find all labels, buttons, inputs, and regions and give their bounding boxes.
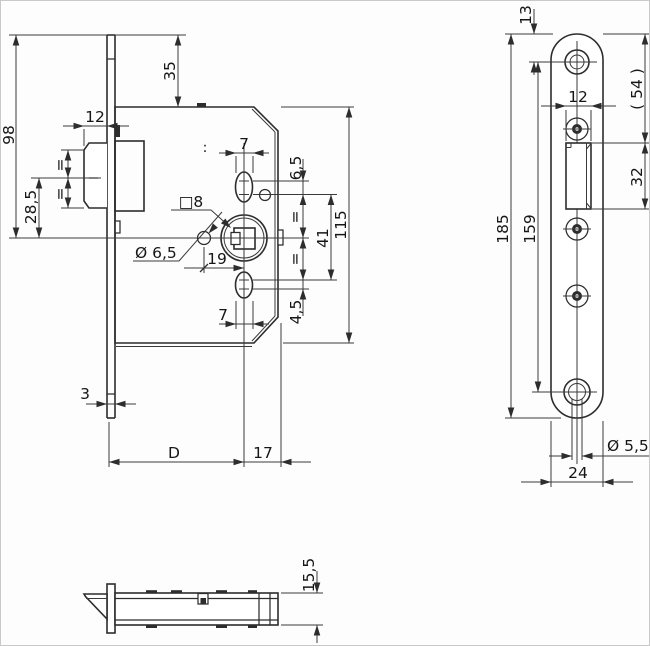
dim-3: 3	[80, 385, 136, 407]
lock-case: :	[115, 103, 283, 347]
bottom-view: 15,5	[84, 558, 323, 643]
latch-bolt	[84, 141, 144, 211]
dim-32-label: 32	[628, 167, 646, 187]
dim-115-label: 115	[332, 210, 350, 240]
dim-17-label: 17	[253, 444, 273, 462]
dim-159-label: 159	[521, 214, 539, 244]
equal-mark: =	[51, 159, 69, 172]
front-view: :	[1, 35, 354, 467]
dia-5-5-label: Ø 5,5	[607, 437, 649, 455]
dim-4-5-label: 4,5	[287, 300, 305, 325]
label-square-8: □8	[171, 193, 233, 230]
dim-12-face-label: 12	[568, 88, 588, 106]
dim-6-5-label: 6,5	[287, 156, 305, 181]
dim-28-5: 28,5	[22, 178, 42, 238]
dim-98-label: 98	[1, 125, 18, 145]
equal-mark: =	[286, 211, 304, 224]
dim-35-label: 35	[161, 61, 179, 81]
case-top-tab	[197, 103, 206, 107]
dim-15-5: 15,5	[281, 558, 323, 643]
dim-41-label: 41	[314, 228, 332, 248]
dim-7-bottom-label: 7	[218, 306, 228, 324]
dim-equal-latch: = =	[51, 150, 84, 208]
latch-bevel	[84, 594, 107, 619]
dia-6-5-label: Ø 6,5	[135, 244, 177, 262]
dim-54-label: ( 54 )	[628, 68, 646, 110]
square-8-label: □8	[179, 193, 204, 211]
rivet-marks: :	[203, 140, 208, 156]
dim-15-5-label: 15,5	[300, 558, 318, 593]
faceplate-edge	[107, 35, 120, 418]
face-plate-view: 13 185 159 12	[494, 5, 650, 487]
dim-D-17: D 17	[109, 323, 311, 467]
dim-3-label: 3	[80, 385, 90, 403]
equal-mark: =	[286, 253, 304, 266]
faceplate-bar	[107, 584, 115, 633]
latch-cutout	[566, 143, 591, 209]
dim-13-label: 13	[517, 5, 535, 25]
dim-185-label: 185	[494, 214, 512, 244]
dim-35: 35	[161, 35, 181, 107]
dim-12-label: 12	[85, 108, 105, 126]
lock-drawing: :	[1, 1, 650, 646]
dim-24-label: 24	[568, 464, 588, 482]
dim-D-label: D	[168, 444, 180, 462]
technical-drawing-canvas: :	[0, 0, 650, 646]
dim-7-top-label: 7	[239, 135, 249, 153]
latch-housing	[115, 141, 144, 211]
dim-28-5-label: 28,5	[22, 190, 40, 225]
equal-mark: =	[51, 188, 69, 201]
follower-slot	[198, 594, 208, 605]
dim-19-label: 19	[207, 250, 227, 268]
